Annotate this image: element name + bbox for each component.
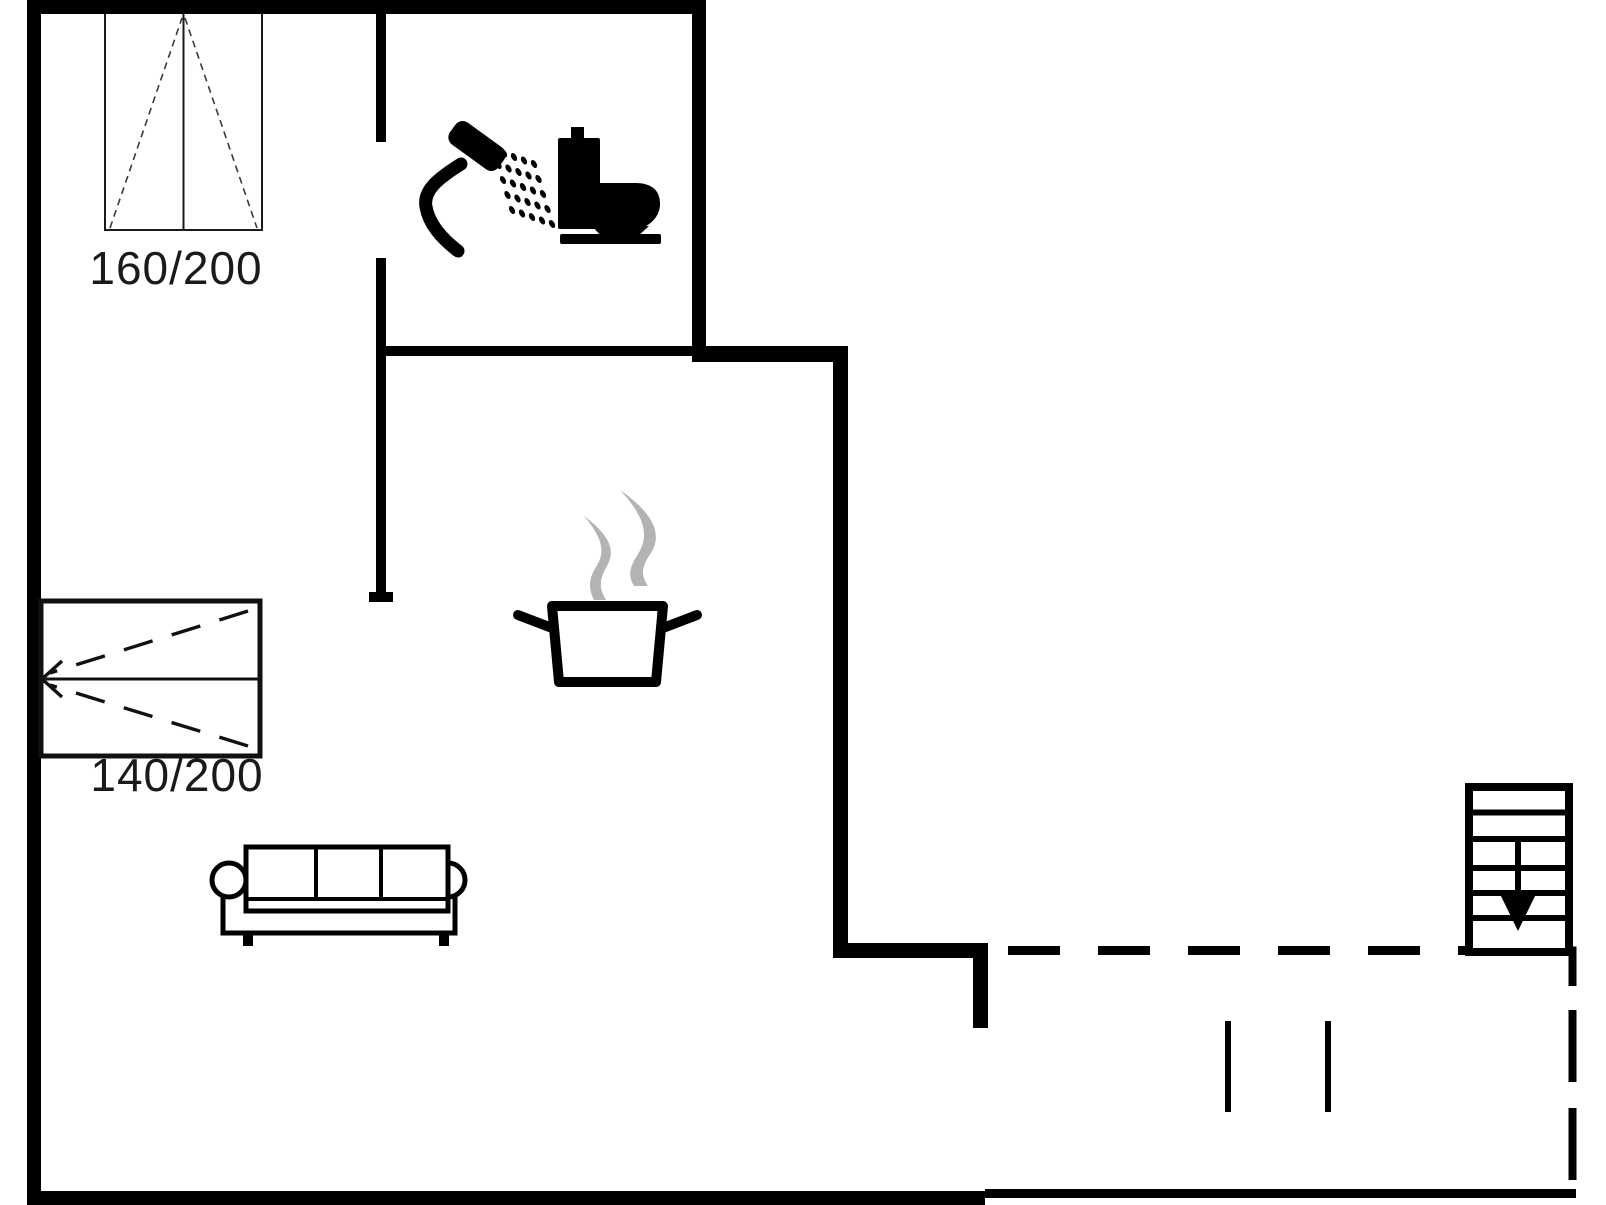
floor-plan: 160/200 140/200	[0, 0, 1606, 1205]
wall-step-horizontal	[692, 346, 848, 362]
window-size-label: 160/200	[89, 243, 262, 294]
toilet-icon	[558, 127, 661, 244]
terrace-posts	[1225, 1021, 1331, 1112]
wall-bathroom-right	[692, 0, 706, 362]
wall-partition-lower	[376, 258, 386, 592]
shower-handle	[426, 164, 461, 251]
floorplan-canvas	[0, 0, 1606, 1205]
wall-bottom-thin	[985, 1189, 1576, 1198]
sofa-armrest-left	[212, 863, 246, 897]
terrace-corner	[1568, 951, 1573, 987]
toilet-button	[571, 127, 584, 139]
window-symbol	[105, 14, 262, 231]
toilet-base	[560, 234, 661, 244]
terrace-post-left	[1225, 1021, 1231, 1112]
sofa-icon	[212, 847, 465, 946]
wall-partition-end-cap	[369, 592, 393, 602]
wall-bathroom-bottom	[386, 346, 692, 356]
terrace-post-right	[1325, 1021, 1331, 1112]
window-opening-line-right	[185, 18, 257, 228]
sofa-leg-right	[439, 933, 449, 946]
pot-handle-right	[663, 615, 697, 628]
shower-icon	[426, 117, 557, 251]
wall-corner-horizontal	[833, 943, 988, 958]
steam-wisp-left	[584, 516, 611, 600]
terrace-dashed-boundary	[1008, 951, 1573, 1185]
steam-icon	[584, 490, 656, 600]
double-door-symbol	[41, 601, 260, 756]
pot-handle-left	[518, 615, 552, 628]
wall-top	[27, 0, 704, 14]
stairs-icon	[1469, 787, 1569, 952]
door-size-label: 140/200	[90, 750, 263, 801]
cooking-pot-icon	[518, 606, 697, 682]
wall-bottom-thick	[27, 1191, 985, 1205]
wall-corner-stub	[973, 943, 988, 1028]
toilet-bowl	[600, 183, 660, 231]
pot-body	[552, 606, 663, 682]
toilet-tank	[558, 138, 600, 229]
wall-kitchen-right	[833, 346, 848, 958]
window-opening-line-left	[110, 18, 182, 228]
wall-partition-upper	[376, 14, 386, 142]
steam-wisp-right	[620, 490, 656, 586]
sofa-leg-left	[243, 933, 253, 946]
sofa-back	[246, 847, 448, 911]
